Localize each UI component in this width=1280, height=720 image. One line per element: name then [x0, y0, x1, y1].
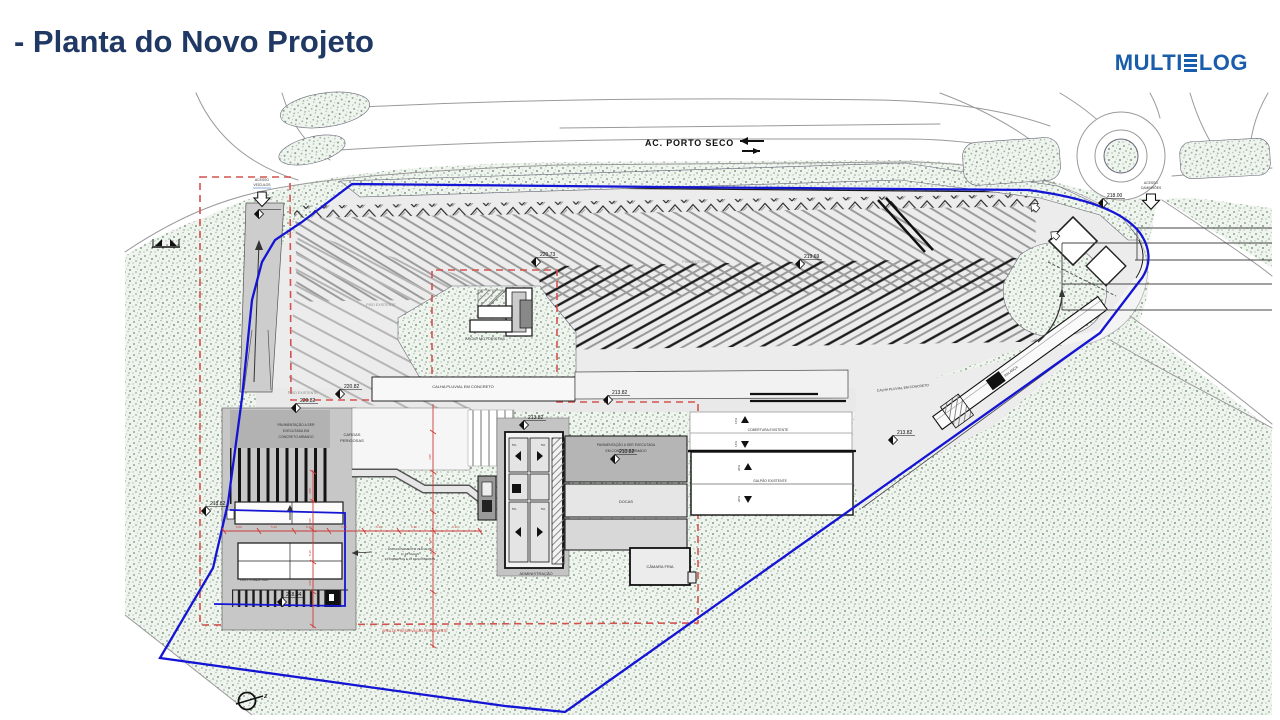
cobertura-existente-label: COBERTURA EXISTENTE — [748, 428, 790, 432]
galpao-existente-label: GALPÃO EXISTENTE — [753, 478, 787, 483]
north-z-label: z — [263, 693, 268, 700]
svg-text:7.00: 7.00 — [341, 525, 347, 529]
estacionamento-label: C/ 48 VAGAS — [401, 552, 419, 556]
camara-fria-label: CÂMARA FRIA — [646, 564, 673, 569]
svg-text:218.34: 218.34 — [286, 592, 302, 598]
calha-pluvial-label: CALHA PLUVIAL EM CONCRETO — [432, 384, 494, 389]
svg-text:5.40: 5.40 — [411, 525, 417, 529]
pavimentacao-label: PAVIMENTAÇÃO A SER — [278, 422, 315, 427]
svg-text:4.85: 4.85 — [308, 518, 312, 524]
piso-existente-label: PISO EXISTENTE — [288, 391, 318, 395]
pavimentacao-label: PAVIMENTAÇÃO A SER EXECUTADA — [597, 442, 656, 447]
svg-text:5.40: 5.40 — [306, 525, 312, 529]
access-trucks-label-1: ACESSO — [1144, 181, 1158, 185]
slope-label: 5% — [512, 507, 517, 511]
svg-text:213.82: 213.82 — [619, 449, 635, 455]
estacionamento-label: ESTACIONAMENTO VEÍCULOS — [388, 547, 432, 551]
svg-text:3.30: 3.30 — [452, 525, 458, 529]
administracao-label: ADMINISTRAÇÃO — [519, 571, 552, 576]
svg-text:213.82: 213.82 — [897, 430, 913, 436]
slope-label: 5% — [512, 443, 517, 447]
slide: - Planta do Novo Projeto MULTI LOG — [0, 0, 1280, 720]
svg-text:220.73: 220.73 — [540, 252, 556, 258]
svg-text:5.35: 5.35 — [428, 538, 432, 544]
svg-text:213.82: 213.82 — [528, 415, 544, 421]
preservacao-label: ÁREA DE PRESERVAÇÃO PERMANENTE — [382, 628, 448, 633]
proj-cobertura-label: PROJ. COBERTURA — [240, 578, 268, 582]
svg-text:4.85: 4.85 — [308, 580, 312, 586]
slope-label: 5% — [541, 507, 546, 511]
slope-label: 20% — [737, 465, 741, 471]
docas-label: DOCAS — [619, 499, 634, 504]
svg-text:218.00: 218.00 — [1107, 193, 1123, 199]
svg-text:213.82: 213.82 — [612, 390, 628, 396]
access-vehicles-label-1: ACESSO — [255, 178, 269, 182]
site-plan-drawing: 5% 5% 5% 5% 14% 14% 20% 20% — [0, 0, 1280, 720]
svg-text:5.40: 5.40 — [376, 525, 382, 529]
access-trucks-label-2: CAMINHÕES — [1141, 185, 1162, 190]
estacionamento-label: 33 COBERTAS E 15 DESCOBERTAS — [385, 557, 436, 561]
administracao-building: 5% 5% 5% 5% — [497, 418, 569, 576]
slope-label: 14% — [734, 441, 738, 447]
access-vehicles-label-2: VEÍCULOS — [253, 183, 271, 187]
svg-text:218.82: 218.82 — [210, 501, 226, 507]
svg-text:220.82: 220.82 — [344, 384, 360, 390]
road-label: AC. PORTO SECO — [645, 138, 734, 148]
svg-text:4.85: 4.85 — [428, 454, 432, 460]
piso-existente-label: PISO EXISTENTE — [682, 260, 712, 264]
svg-text:220.82: 220.82 — [300, 398, 316, 404]
svg-text:219.69: 219.69 — [804, 254, 820, 260]
svg-text:5.40: 5.40 — [271, 525, 277, 529]
cargas-perigosas-label: PERIGOSAS — [340, 438, 364, 443]
apoio-motoristas-label: APOIO MOTORISTAS — [465, 336, 505, 341]
slope-label: 5% — [541, 443, 546, 447]
piso-existente-label: PISO EXISTENTE — [366, 303, 396, 307]
slope-label: 20% — [737, 496, 741, 502]
cargas-perigosas-label: CARGAS — [344, 432, 361, 437]
slope-label: 14% — [734, 418, 738, 424]
svg-text:4.85: 4.85 — [308, 488, 312, 494]
pavimentacao-label: EXECUTADA EM — [283, 429, 309, 433]
svg-text:5.35: 5.35 — [308, 550, 312, 556]
svg-text:5.00: 5.00 — [236, 525, 242, 529]
pavimentacao-label: CONCRETO ARMADO — [279, 435, 314, 439]
